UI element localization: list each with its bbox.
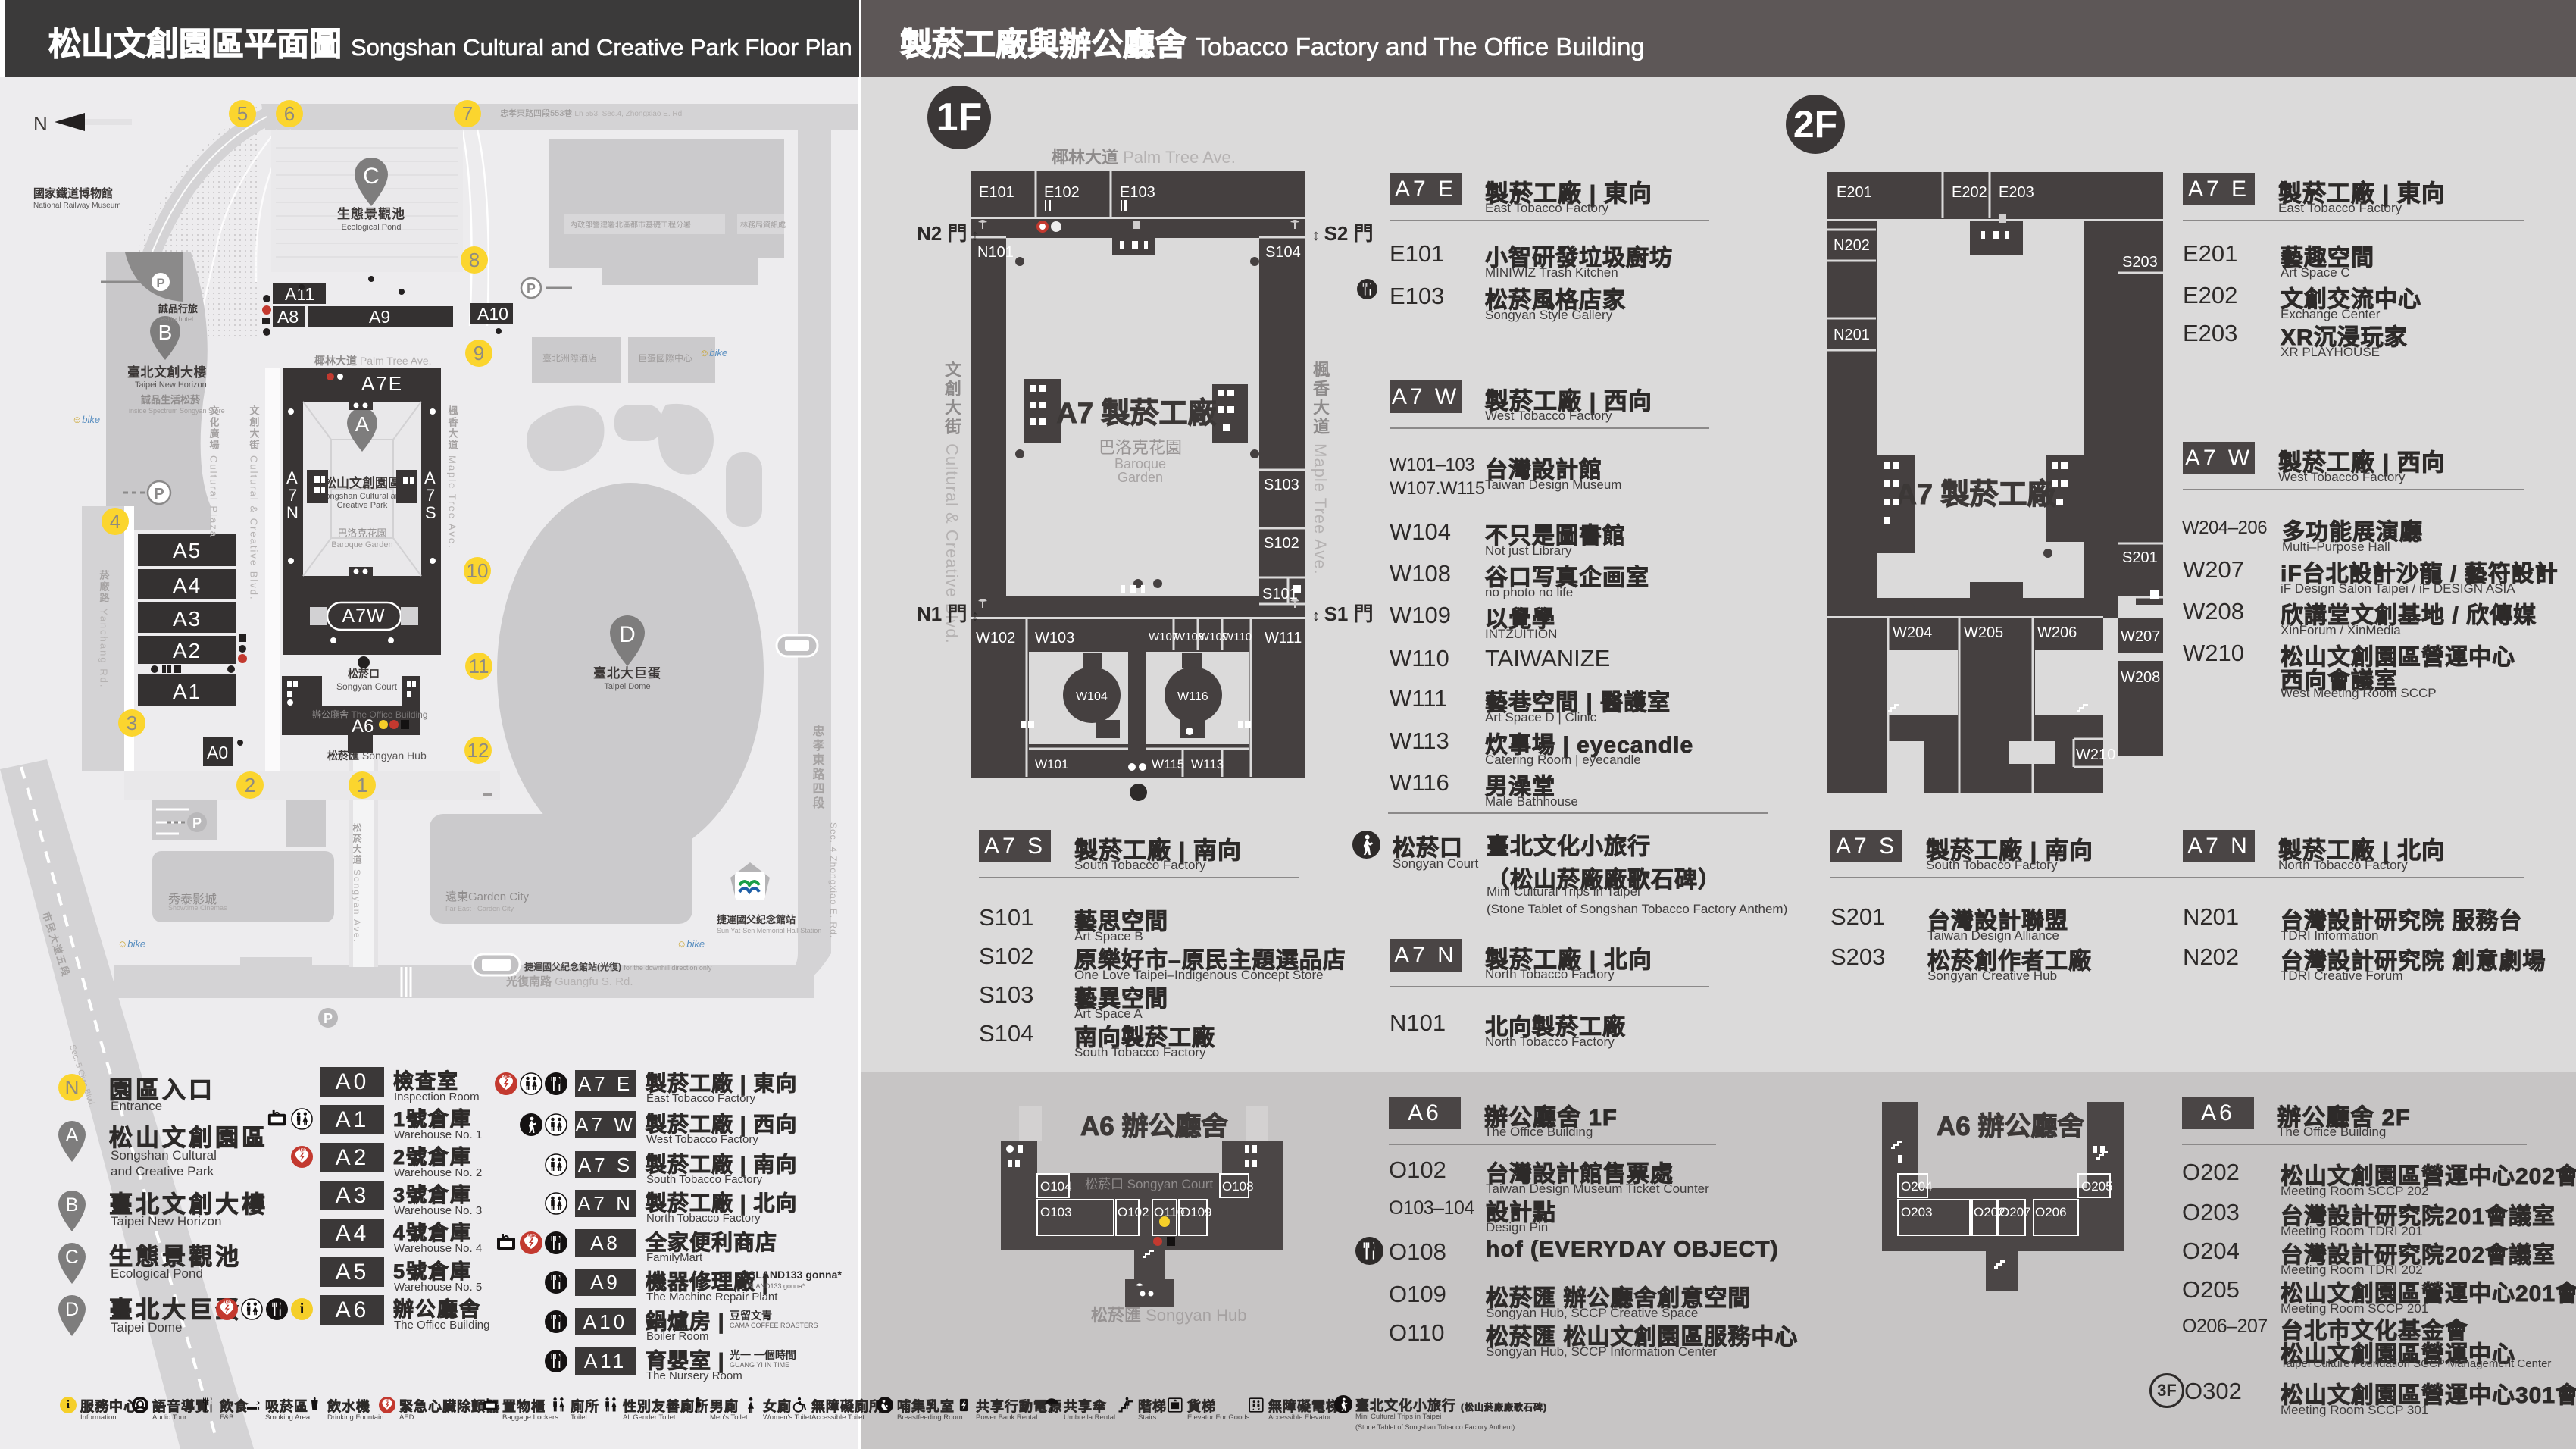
svg-text:Songyan Court: Songyan Court — [336, 681, 398, 692]
svg-text:D: D — [619, 622, 636, 647]
svg-text:☺bike: ☺bike — [117, 938, 145, 950]
svg-text:S103: S103 — [1264, 477, 1299, 493]
svg-text:☺bike: ☺bike — [72, 414, 100, 425]
svg-text:O109: O109 — [1180, 1205, 1212, 1219]
svg-text:AED: AED — [223, 1300, 231, 1305]
svg-text:S104: S104 — [1265, 244, 1301, 261]
svg-text:Taipei Dome: Taipei Dome — [604, 682, 650, 691]
svg-text:Taipei New Horizon: Taipei New Horizon — [135, 380, 207, 390]
svg-text:W113: W113 — [1191, 757, 1224, 771]
svg-text:E103: E103 — [1120, 184, 1155, 201]
svg-text:巴洛克花園: 巴洛克花園 — [1099, 438, 1182, 457]
svg-text:A4: A4 — [173, 574, 202, 597]
svg-text:N: N — [33, 112, 48, 135]
svg-text:N202: N202 — [1834, 237, 1870, 254]
svg-text:A: A — [66, 1125, 79, 1146]
svg-text:W204: W204 — [1893, 624, 1932, 641]
svg-text:W111: W111 — [1265, 630, 1302, 646]
svg-text:椰林大道 Palm Tree Ave.: 椰林大道 Palm Tree Ave. — [314, 355, 432, 367]
svg-text:B: B — [66, 1194, 79, 1216]
svg-text:O204: O204 — [1901, 1179, 1933, 1194]
svg-text:O102: O102 — [1118, 1205, 1149, 1219]
svg-text:文化廣場 Cultural Plaza: 文化廣場 Cultural Plaza — [208, 405, 220, 537]
svg-text:松菸口: 松菸口 — [348, 668, 380, 680]
svg-text:臺北洲際酒店: 臺北洲際酒店 — [542, 352, 597, 364]
svg-text:生態景觀池: 生態景觀池 — [337, 206, 405, 221]
svg-text:W116: W116 — [1177, 690, 1208, 703]
svg-text:A1: A1 — [173, 680, 202, 703]
svg-text:E201: E201 — [1837, 184, 1872, 201]
svg-text:Ecological Pond: Ecological Pond — [342, 223, 402, 232]
svg-text:Garden: Garden — [1118, 470, 1163, 485]
svg-text:A0: A0 — [207, 743, 228, 762]
svg-text:Showtime Cinemas: Showtime Cinemas — [168, 904, 227, 912]
svg-text:☺bike: ☺bike — [699, 347, 727, 358]
svg-text:AED: AED — [384, 1398, 391, 1402]
svg-text:誠品行旅: 誠品行旅 — [158, 303, 198, 315]
svg-text:eslite hotel: eslite hotel — [161, 315, 193, 323]
svg-text:遠東Garden City: 遠東Garden City — [445, 890, 530, 903]
svg-text:AED: AED — [527, 1235, 536, 1239]
svg-text:臺北大巨蛋: 臺北大巨蛋 — [593, 665, 661, 681]
svg-text:E202: E202 — [1952, 184, 1987, 201]
svg-text:C: C — [363, 164, 380, 189]
svg-text:國家鐵道博物館: 國家鐵道博物館 — [33, 186, 113, 200]
svg-text:A8: A8 — [277, 307, 299, 327]
svg-text:O207: O207 — [1999, 1205, 2031, 1219]
svg-text:S102: S102 — [1264, 535, 1299, 552]
svg-text:W104: W104 — [1076, 690, 1108, 703]
svg-text:A6: A6 — [352, 716, 374, 737]
svg-text:文創大街 Cultural & Creative Blvd.: 文創大街 Cultural & Creative Blvd. — [249, 405, 261, 600]
svg-text:W102: W102 — [976, 630, 1015, 646]
svg-text:Far East - Garden City: Far East - Garden City — [445, 905, 514, 912]
svg-text:C: C — [65, 1247, 79, 1268]
svg-text:National Railway Museum: National Railway Museum — [33, 202, 121, 210]
svg-text:W208: W208 — [2121, 669, 2160, 686]
svg-text:P: P — [527, 281, 536, 296]
svg-text:A7 製菸工廠: A7 製菸工廠 — [1896, 478, 2055, 511]
svg-text:A2: A2 — [173, 639, 202, 662]
svg-text:D: D — [65, 1299, 79, 1320]
svg-text:誠品生活松菸: 誠品生活松菸 — [141, 394, 201, 405]
svg-text:A10: A10 — [477, 304, 508, 324]
svg-text:P: P — [192, 815, 202, 831]
svg-text:O108: O108 — [1222, 1179, 1254, 1194]
svg-text:N201: N201 — [1834, 327, 1870, 343]
svg-text:松菸口 Songyan Court: 松菸口 Songyan Court — [1085, 1177, 1213, 1191]
svg-text:捷運國父紀念館站: 捷運國父紀念館站 — [717, 914, 796, 925]
svg-text:A9: A9 — [369, 307, 390, 327]
svg-text:O203: O203 — [1901, 1205, 1933, 1219]
svg-text:E102: E102 — [1044, 184, 1080, 201]
svg-text:N101: N101 — [977, 244, 1014, 261]
svg-text:P: P — [324, 1011, 333, 1026]
svg-text:W205: W205 — [1964, 624, 2003, 641]
svg-text:AED: AED — [502, 1075, 511, 1080]
svg-text:Baroque: Baroque — [1114, 456, 1166, 471]
svg-text:S203: S203 — [2122, 254, 2158, 271]
svg-text:巨蛋國際中心: 巨蛋國際中心 — [638, 352, 692, 364]
svg-text:E101: E101 — [979, 184, 1014, 201]
svg-text:O206: O206 — [2035, 1205, 2067, 1219]
svg-text:W101: W101 — [1035, 757, 1068, 771]
svg-text:內政部營建署北區都市基礎工程分署: 內政部營建署北區都市基礎工程分署 — [570, 220, 691, 230]
svg-text:林務局資訊處: 林務局資訊處 — [740, 220, 786, 230]
svg-text:菸廠路 Yanchang Rd.: 菸廠路 Yanchang Rd. — [98, 569, 110, 688]
svg-text:忠孝東路四段553巷 Ln 553, Sec.4, Zhon: 忠孝東路四段553巷 Ln 553, Sec.4, Zhongxiao E. R… — [500, 108, 684, 118]
svg-text:O103: O103 — [1040, 1205, 1072, 1219]
svg-text:楓香大道 Maple Tree Ave.: 楓香大道 Maple Tree Ave. — [447, 405, 459, 549]
svg-text:W207: W207 — [2121, 628, 2160, 645]
svg-text:捷運國父紀念館站(光復) for the downhill: 捷運國父紀念館站(光復) for the downhill direction … — [524, 961, 712, 972]
svg-text:Sun Yat-Sen Memorial Hall Stat: Sun Yat-Sen Memorial Hall Station — [717, 927, 821, 934]
svg-text:市民大道五段: 市民大道五段 — [40, 910, 72, 978]
svg-text:AED: AED — [298, 1148, 306, 1153]
svg-text:Sec. 4 Zhongxiao E. Rd.: Sec. 4 Zhongxiao E. Rd. — [828, 822, 839, 938]
svg-text:A5: A5 — [173, 539, 202, 562]
svg-text:松菸大道 Songyan Ave.: 松菸大道 Songyan Ave. — [352, 822, 362, 944]
svg-text:忠孝東路四段: 忠孝東路四段 — [811, 724, 826, 811]
svg-text:臺北文創大樓: 臺北文創大樓 — [127, 365, 207, 380]
svg-text:光復南路 Guangfu S. Rd.: 光復南路 Guangfu S. Rd. — [505, 975, 633, 988]
svg-text:松菸匯 Songyan Hub: 松菸匯 Songyan Hub — [327, 750, 427, 762]
svg-text:☺bike: ☺bike — [677, 938, 705, 950]
svg-text:B: B — [158, 321, 173, 344]
svg-text:W110: W110 — [1223, 631, 1252, 643]
svg-text:O104: O104 — [1040, 1179, 1072, 1194]
svg-text:W103: W103 — [1035, 630, 1074, 646]
svg-text:E203: E203 — [1999, 184, 2034, 201]
svg-text:W206: W206 — [2037, 624, 2077, 641]
svg-text:A3: A3 — [173, 607, 202, 631]
svg-text:W115: W115 — [1152, 757, 1184, 771]
svg-text:W210: W210 — [2076, 746, 2115, 763]
svg-text:S201: S201 — [2122, 549, 2158, 566]
svg-text:A7 製菸工廠: A7 製菸工廠 — [1056, 397, 1216, 430]
svg-text:O205: O205 — [2081, 1179, 2113, 1194]
